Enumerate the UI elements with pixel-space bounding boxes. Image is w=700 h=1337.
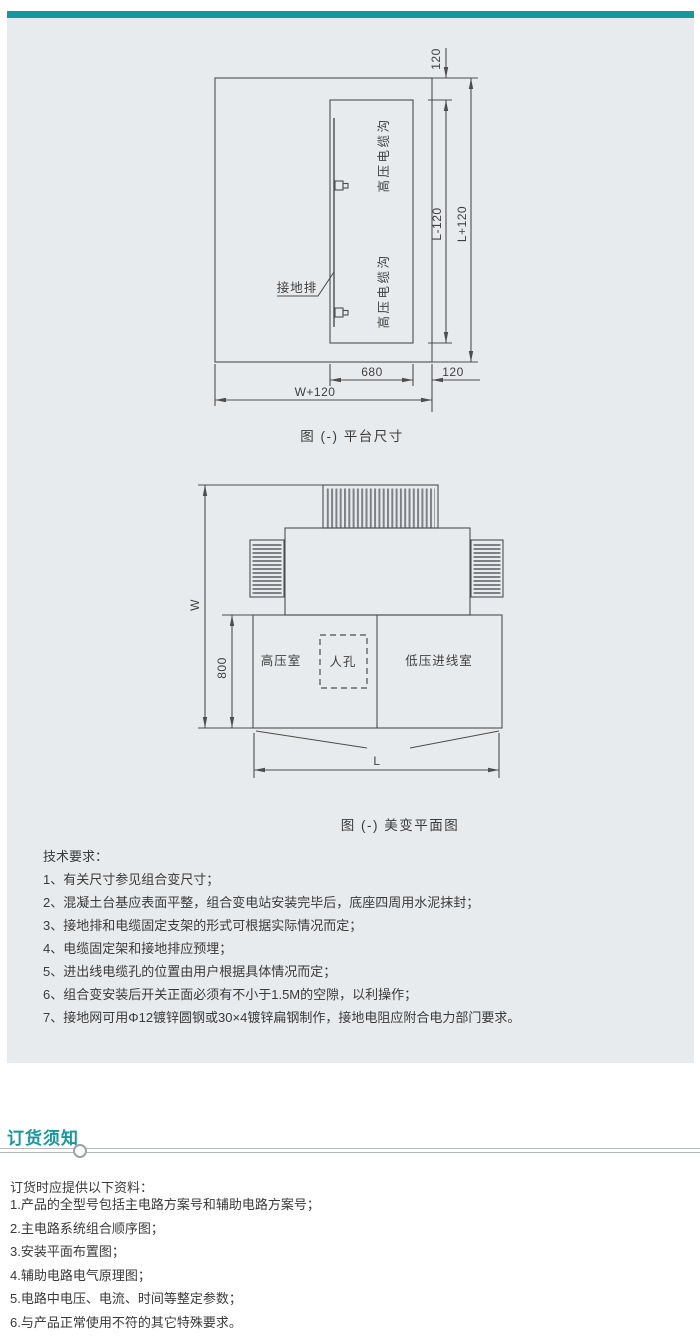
tech-item: 2、混凝土台基应表面平整，组合变电站安装完毕后，底座四周用水泥抹封； (43, 891, 663, 914)
trench-label-top: 高压电缆沟 (376, 117, 391, 192)
hv-room-label: 高压室 (261, 653, 302, 668)
left-radiator-fins (253, 543, 282, 594)
ordering-item: 5.电路中电压、电流、时间等整定参数； (10, 1287, 670, 1311)
tech-item: 6、组合变安装后开关正面必须有不小于1.5M的空隙，以利操作； (43, 983, 663, 1006)
trench-label-bottom: 高压电缆沟 (376, 253, 391, 328)
base-skirt-left (256, 731, 367, 748)
catalog-page: 高压电缆沟 高压电缆沟 接地排 120 L-120 L+120 680 120 … (0, 0, 700, 1337)
dim-inner-height: L-120 (430, 207, 444, 240)
dim-top-gap: 120 (429, 48, 443, 70)
cable-clamp-bottom (335, 308, 348, 317)
dim-length-l: L (373, 754, 380, 768)
tech-item: 4、电缆固定架和接地排应预埋； (43, 937, 663, 960)
dim-outer-width: W+120 (295, 385, 336, 399)
figure2-caption: 图 (-) 美变平面图 (341, 818, 460, 833)
dimension-lines-bottom (215, 364, 480, 412)
ordering-item: 2.主电路系统组合顺序图； (10, 1217, 670, 1241)
ordering-item: 3.安装平面布置图； (10, 1240, 670, 1264)
cable-clamp-top (335, 181, 348, 190)
page-top-accent-bar (7, 11, 694, 18)
right-radiator-fins (474, 543, 501, 594)
tech-item: 7、接地网可用Φ12镀锌圆钢或30×4镀锌扁钢制作，接地电阻应附合电力部门要求。 (43, 1006, 663, 1029)
dim-outer-height: L+120 (455, 206, 469, 242)
section-divider-dot (73, 1144, 87, 1158)
ordering-section-title: 订货须知 (7, 1124, 79, 1149)
ordering-item: 6.与产品正常使用不符的其它特殊要求。 (10, 1311, 670, 1335)
ordering-item: 4.辅助电路电气原理图； (10, 1264, 670, 1288)
dim-depth-800: 800 (215, 657, 229, 679)
dim-side-gap: 120 (442, 365, 464, 379)
dim-width-w: W (188, 599, 202, 611)
tech-item: 1、有关尺寸参见组合变尺寸； (43, 868, 663, 891)
ground-bar-label: 接地排 (277, 280, 318, 295)
base-skirt-right (410, 731, 499, 748)
lv-room-label: 低压进线室 (405, 653, 473, 668)
dimension-lines (198, 485, 499, 778)
tech-item: 5、进出线电缆孔的位置由用户根据具体情况而定； (43, 960, 663, 983)
top-radiator-fins (326, 489, 435, 529)
figure1-caption: 图 (-) 平台尺寸 (300, 429, 404, 444)
section-divider-line (0, 1148, 700, 1153)
figure2-transformer-plan: 高压室 人孔 低压进线室 W 800 L 图 (-) 美变平面图 (180, 470, 510, 840)
tech-item: 3、接地排和电缆固定支架的形式可根据实际情况而定； (43, 914, 663, 937)
platform-outline (215, 78, 432, 362)
dimension-lines-right (446, 48, 471, 362)
figure1-platform-dimensions: 高压电缆沟 高压电缆沟 接地排 120 L-120 L+120 680 120 … (180, 40, 490, 450)
ordering-item: 1.产品的全型号包括主电路方案号和辅助电路方案号； (10, 1193, 670, 1217)
manhole-label: 人孔 (329, 655, 356, 669)
cable-trench-outline (330, 100, 413, 343)
ordering-list: 1.产品的全型号包括主电路方案号和辅助电路方案号； 2.主电路系统组合顺序图； … (10, 1193, 670, 1334)
transformer-tank (285, 528, 470, 615)
tech-heading: 技术要求： (43, 845, 663, 868)
dim-trench-width: 680 (361, 365, 383, 379)
technical-requirements: 技术要求： 1、有关尺寸参见组合变尺寸； 2、混凝土台基应表面平整，组合变电站安… (43, 845, 663, 1029)
